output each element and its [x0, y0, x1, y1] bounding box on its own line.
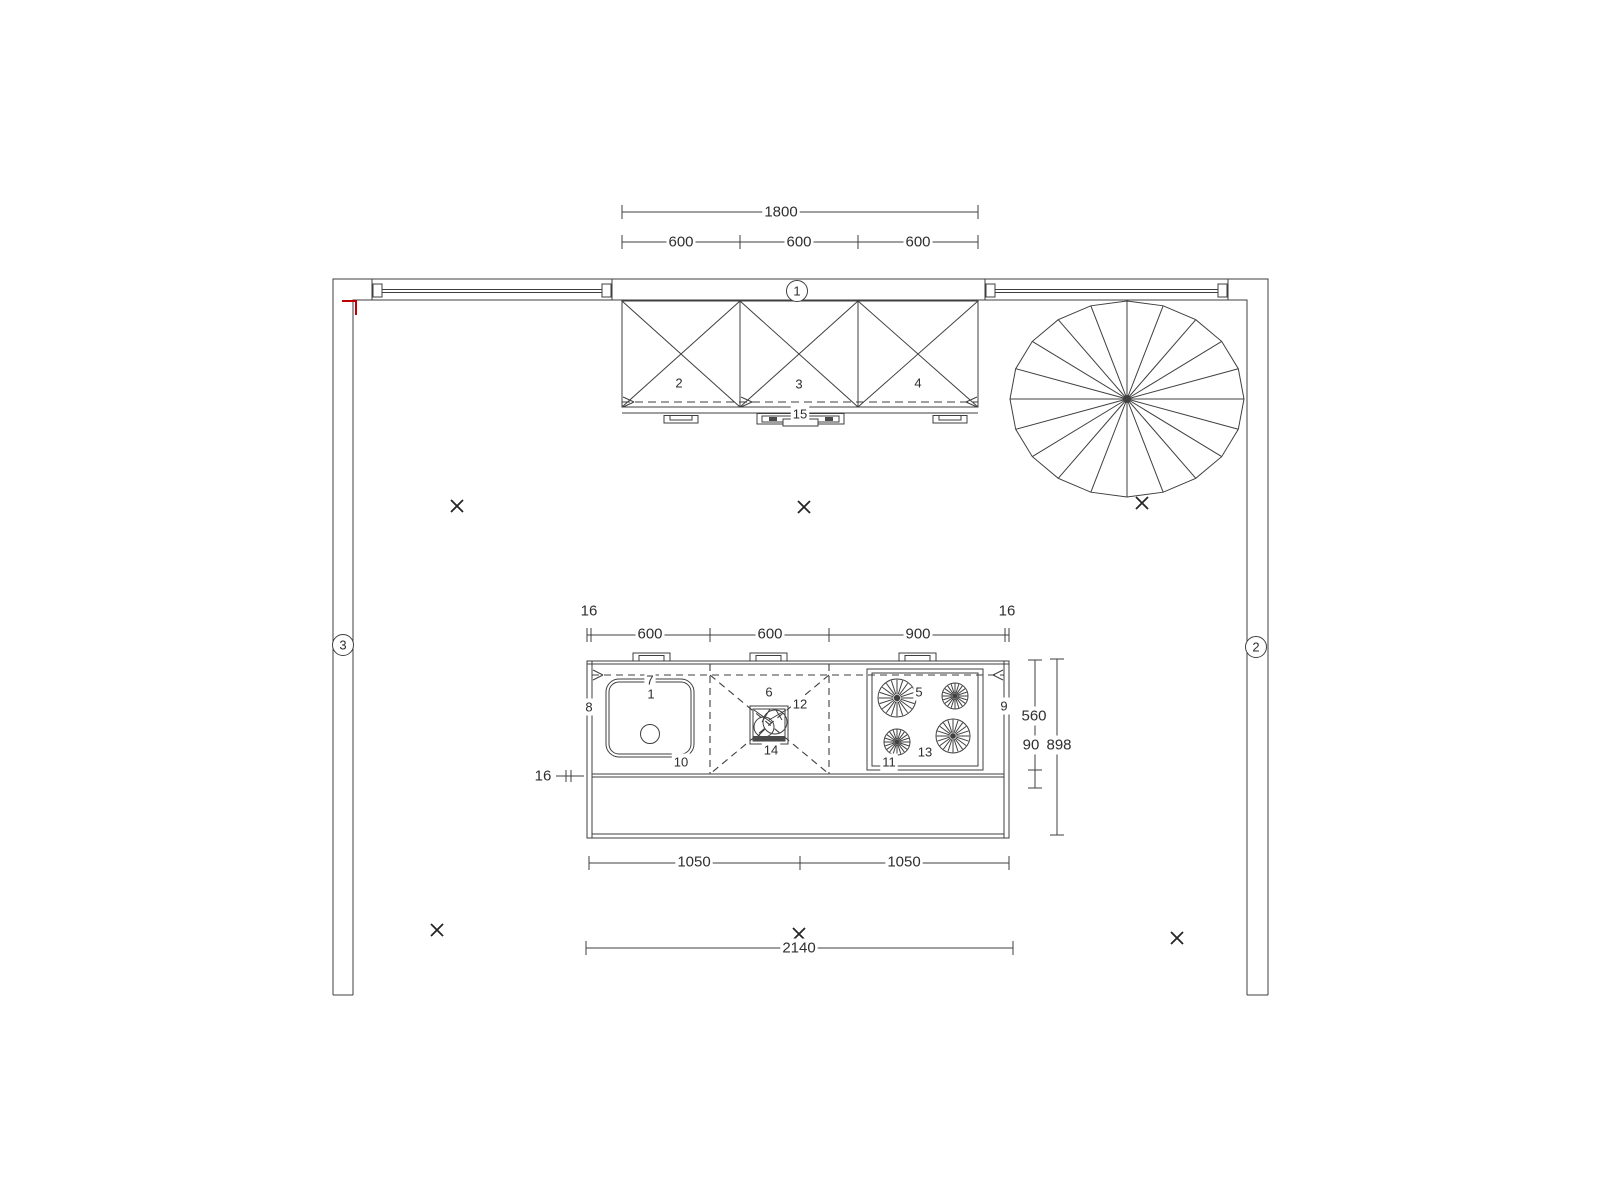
island-worktop-edge — [592, 774, 1004, 777]
dim-label-island-600-b: 600 — [757, 626, 782, 643]
wall-marker-circles — [333, 281, 1267, 658]
item-label-8: 8 — [585, 700, 592, 715]
hob-burner — [884, 729, 910, 755]
floor-plan-canvas: 1800 600 600 600 16 600 600 900 16 560 9… — [0, 0, 1600, 1200]
item-label-hob-5: 5 — [915, 685, 922, 700]
dim-label-island-900: 900 — [905, 626, 930, 643]
dim-label-898: 898 — [1046, 737, 1071, 754]
x-mark — [1171, 932, 1183, 944]
item-label-cabinet-2: 2 — [675, 376, 682, 391]
spiral-staircase — [1010, 301, 1244, 497]
item-label-hood-15: 15 — [793, 407, 807, 422]
dim-label-1050-b: 1050 — [887, 854, 920, 871]
item-label-13: 13 — [918, 745, 932, 760]
dim-label-600-c: 600 — [905, 234, 930, 251]
window-left-cap-l — [373, 284, 382, 297]
dim-label-1050-a: 1050 — [677, 854, 710, 871]
dim-label-600-b: 600 — [786, 234, 811, 251]
dim-label-16-right: 16 — [999, 603, 1016, 620]
dimension-lines — [556, 205, 1064, 955]
hob-burner — [942, 683, 968, 709]
sink-drain — [641, 725, 660, 744]
reference-x-marks — [431, 497, 1183, 944]
x-mark — [431, 924, 443, 936]
dim-label-560: 560 — [1021, 708, 1046, 725]
island-handle-mid — [750, 653, 787, 661]
item-label-11: 11 — [882, 755, 896, 770]
island-handle-hob — [899, 653, 936, 661]
wall-outline-inner — [353, 300, 1247, 995]
labels: 1800 600 600 600 16 600 600 900 16 560 9… — [339, 203, 1259, 958]
item-label-9: 9 — [1000, 699, 1007, 714]
item-label-cabinet-3: 3 — [795, 377, 802, 392]
dim-label-16-worktop: 16 — [535, 768, 552, 785]
x-mark — [451, 500, 463, 512]
dim-label-600-a: 600 — [668, 234, 693, 251]
wall-marker-3-label: 3 — [339, 638, 346, 653]
wall-marker-1-label: 1 — [793, 284, 800, 299]
dim-label-1800: 1800 — [764, 204, 797, 221]
dim-label-island-600-a: 600 — [637, 626, 662, 643]
wall-marker-2-label: 2 — [1252, 640, 1259, 655]
window-left-cap-r — [602, 284, 611, 297]
item-label-cabinet-4: 4 — [914, 376, 921, 391]
dim-island-bottom-segments — [589, 856, 1009, 870]
window-right — [985, 279, 1228, 300]
cabinet-handle-left — [664, 416, 698, 424]
cabinet-handle-right — [933, 416, 967, 424]
window-left — [372, 279, 612, 300]
item-label-7: 7 — [646, 673, 653, 688]
dim-worktop-thickness — [556, 770, 584, 782]
hob-burner — [936, 719, 970, 753]
dim-label-2140: 2140 — [782, 940, 815, 957]
dim-wall-cabinets-total — [622, 205, 978, 219]
hob-burner — [878, 679, 916, 717]
corner-accent-mark — [342, 301, 356, 315]
item-label-10: 10 — [674, 755, 688, 770]
window-right-cap-l — [986, 284, 995, 297]
dim-label-90: 90 — [1023, 737, 1040, 754]
island-handle-sink — [633, 653, 670, 661]
kitchen-floor-plan-drawing: 1800 600 600 600 16 600 600 900 16 560 9… — [0, 0, 1600, 1200]
x-mark — [798, 501, 810, 513]
item-label-6: 6 — [765, 685, 772, 700]
x-mark — [793, 928, 805, 940]
item-label-12: 12 — [793, 697, 807, 712]
item-label-14: 14 — [764, 743, 778, 758]
window-right-cap-r — [1218, 284, 1227, 297]
item-label-sink-1: 1 — [647, 687, 654, 702]
x-mark — [1136, 497, 1148, 509]
dim-label-16-left: 16 — [581, 603, 598, 620]
